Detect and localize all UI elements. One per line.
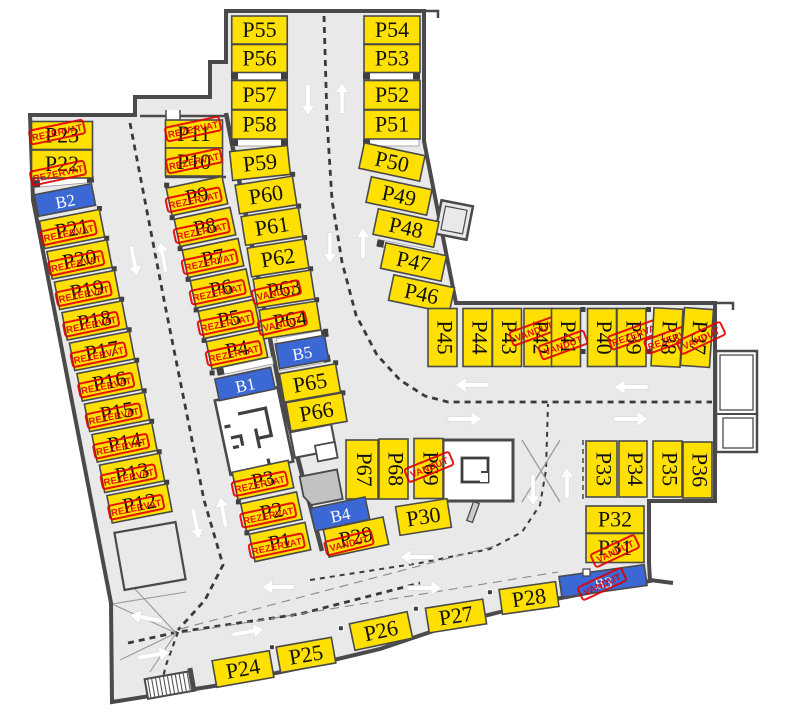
svg-text:P32: P32 <box>598 507 632 532</box>
svg-text:P53: P53 <box>375 46 409 71</box>
svg-text:P58: P58 <box>242 112 276 137</box>
svg-text:P62: P62 <box>259 242 297 272</box>
svg-text:P55: P55 <box>242 17 276 42</box>
svg-text:P56: P56 <box>242 46 276 71</box>
svg-text:P45: P45 <box>432 320 457 354</box>
svg-text:P36: P36 <box>687 453 712 487</box>
svg-text:P27: P27 <box>437 600 475 630</box>
svg-text:P33: P33 <box>591 452 616 486</box>
svg-text:P44: P44 <box>467 320 492 354</box>
svg-text:P57: P57 <box>242 82 276 107</box>
svg-text:B2: B2 <box>54 190 77 212</box>
svg-text:P52: P52 <box>375 82 409 107</box>
svg-text:P51: P51 <box>375 112 409 137</box>
svg-text:P60: P60 <box>247 179 285 209</box>
svg-text:P28: P28 <box>510 583 547 613</box>
svg-text:P54: P54 <box>375 17 409 42</box>
svg-text:P61: P61 <box>253 211 291 241</box>
svg-text:P67: P67 <box>352 452 377 486</box>
svg-text:P35: P35 <box>657 452 682 486</box>
svg-text:P30: P30 <box>405 501 443 531</box>
svg-text:P59: P59 <box>242 148 279 176</box>
svg-text:B5: B5 <box>291 342 314 364</box>
svg-text:B1: B1 <box>234 374 257 397</box>
svg-text:P34: P34 <box>623 452 648 486</box>
